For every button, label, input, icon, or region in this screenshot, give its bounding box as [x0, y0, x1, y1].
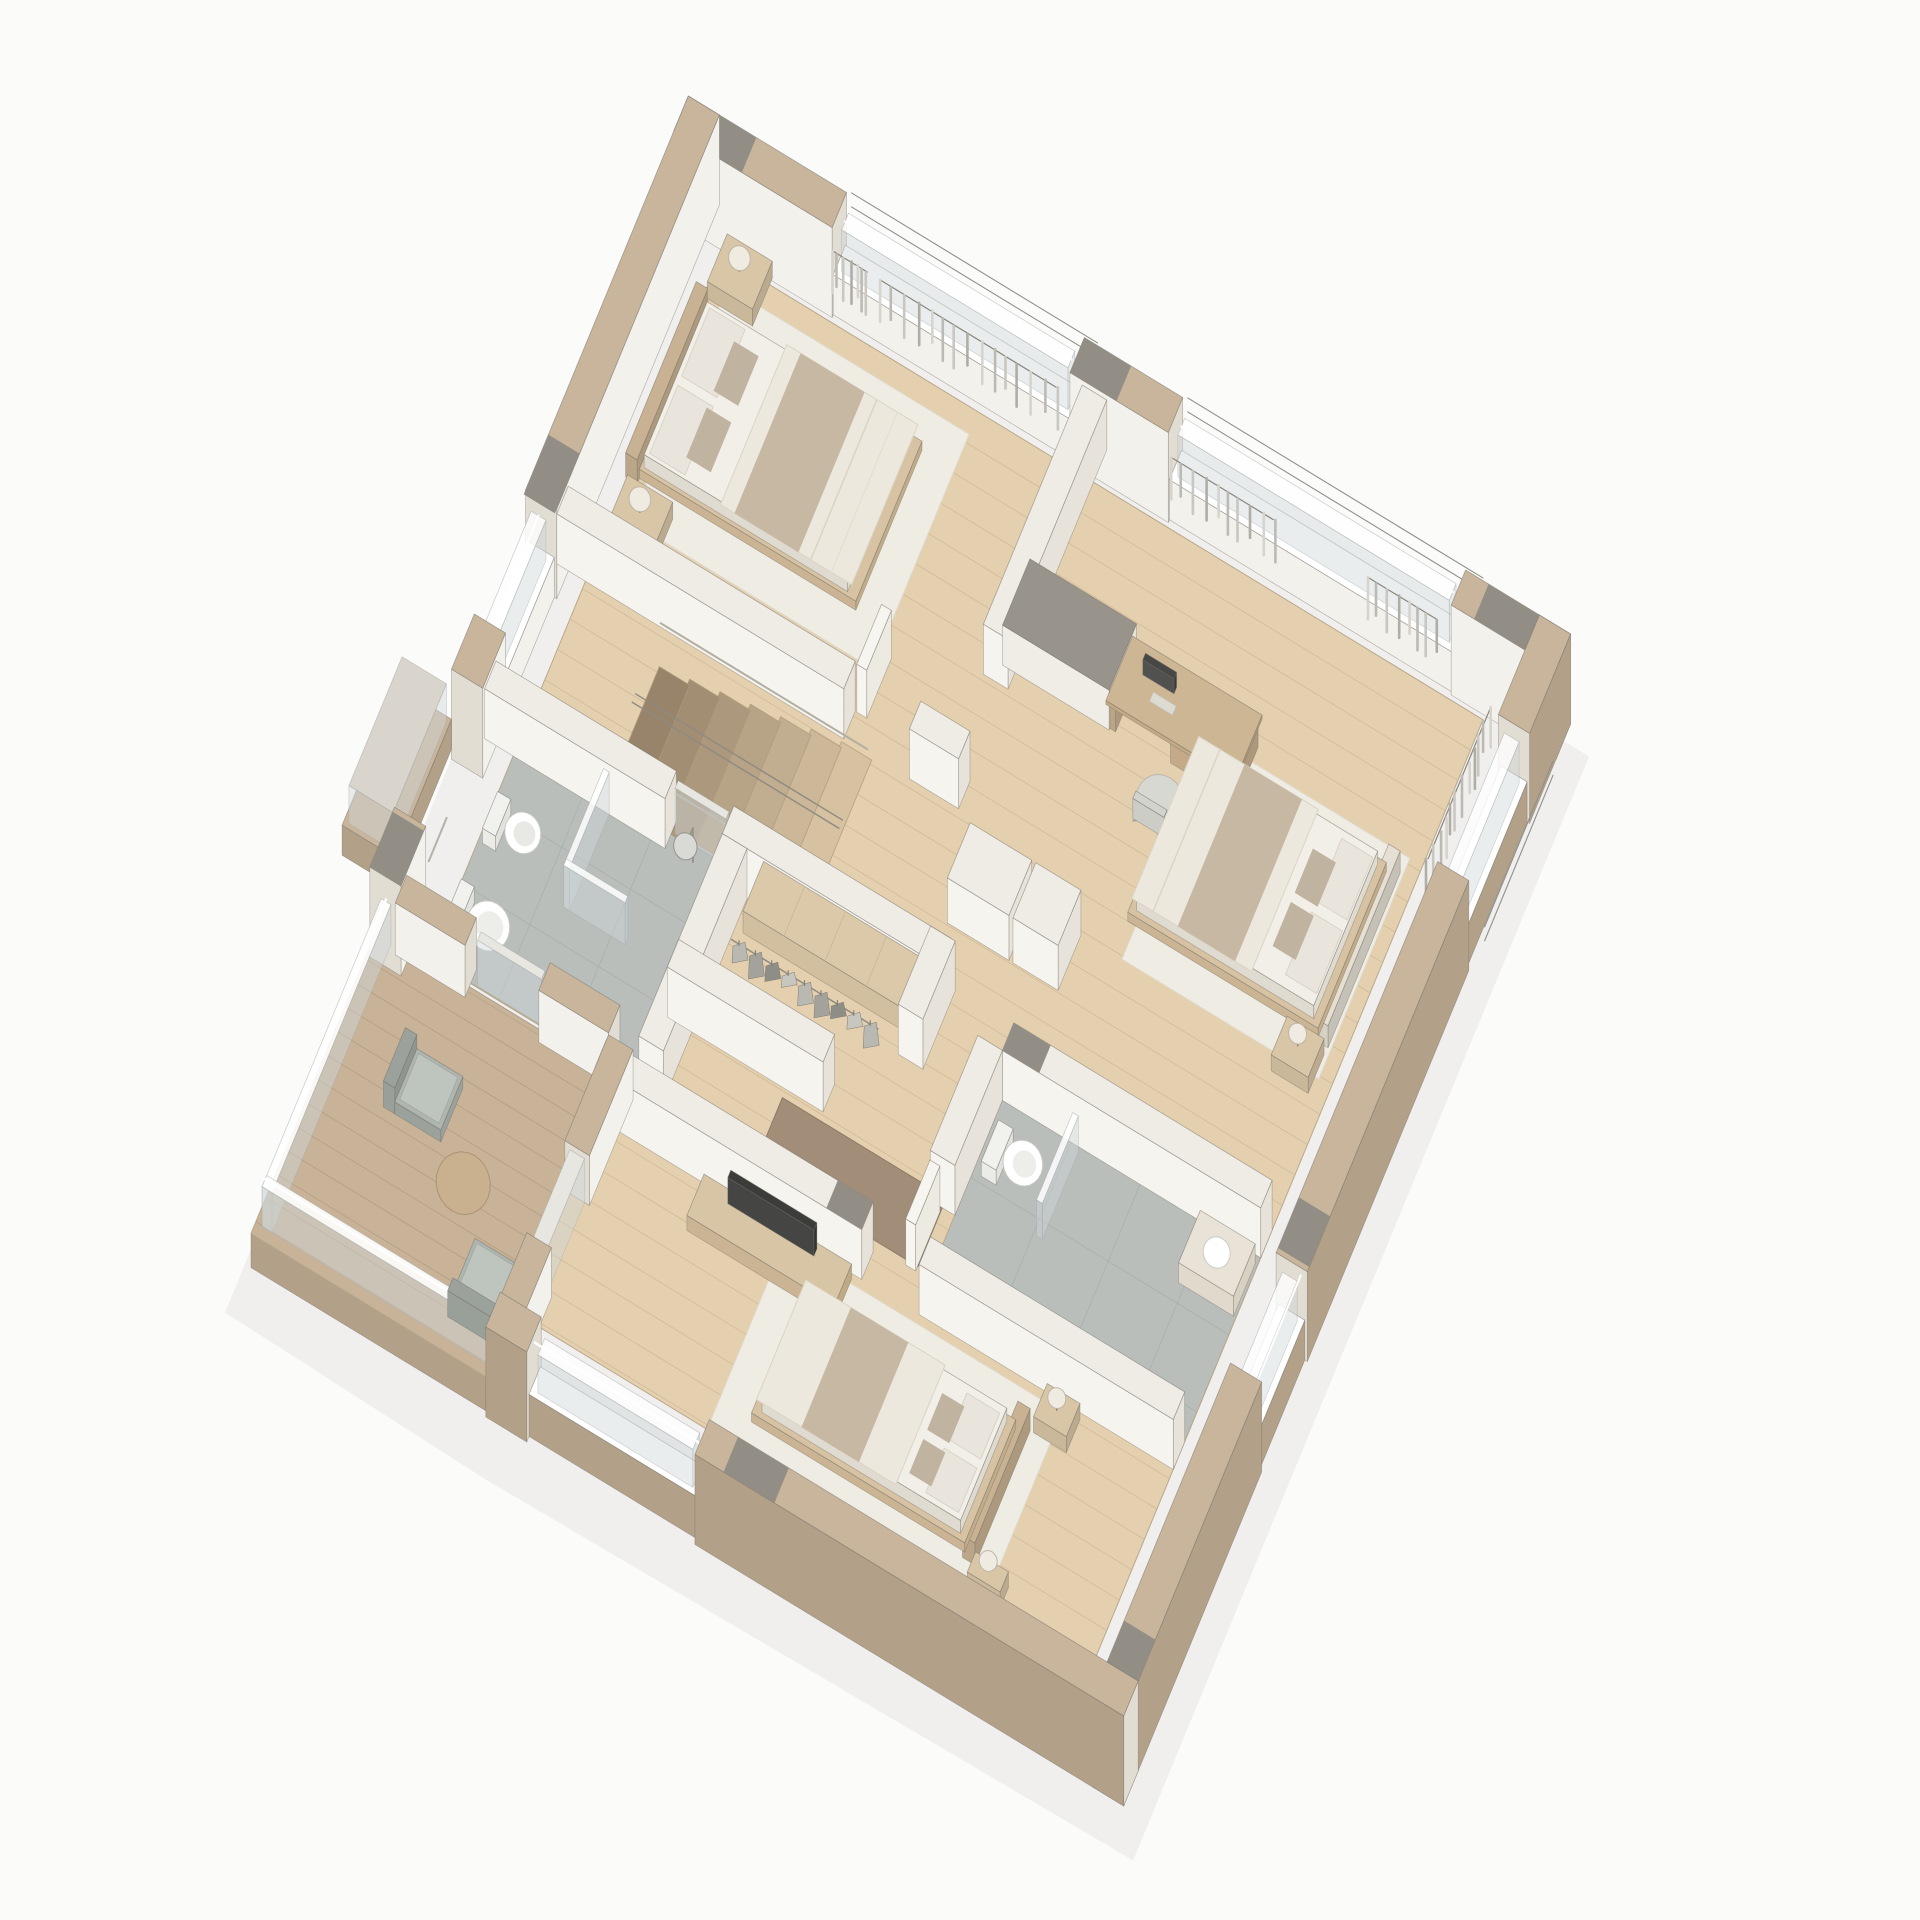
- bed2-lamp: [1289, 1023, 1307, 1044]
- shower-head: [674, 833, 697, 860]
- floorplan-canvas: [0, 0, 1920, 1920]
- master-lamp1: [729, 246, 751, 271]
- master-lamp2: [629, 487, 651, 512]
- floorplan-svg: [0, 0, 1920, 1920]
- bed3-lamp2: [979, 1551, 997, 1572]
- ensuite-sink: [1203, 1237, 1230, 1268]
- bed3-lamp1: [1048, 1388, 1066, 1409]
